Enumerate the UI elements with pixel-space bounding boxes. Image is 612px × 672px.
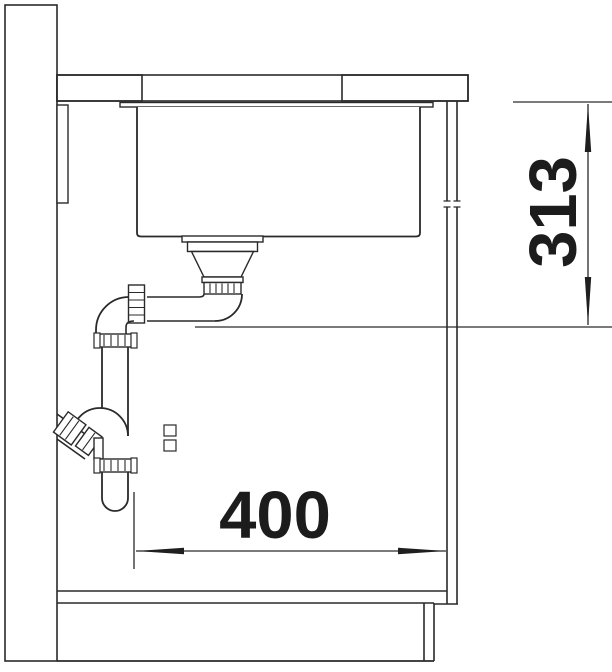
sink-bowl — [137, 107, 420, 237]
siphon-trap — [53, 333, 176, 511]
cabinet-side-panel — [447, 101, 457, 604]
pipe-coupling-nut — [129, 285, 145, 323]
wall-batten — [57, 105, 68, 203]
wall-section — [5, 5, 68, 661]
installation-drawing: 313 400 — [0, 0, 612, 672]
arrow-up-icon — [585, 104, 591, 152]
dimension-400-label: 400 — [219, 478, 331, 553]
worktop — [57, 75, 468, 101]
dimension-313-label: 313 — [516, 156, 591, 268]
sink — [120, 103, 433, 237]
pipe-clip — [164, 425, 176, 436]
sink-flange — [120, 103, 433, 108]
arrow-left-icon — [136, 548, 184, 554]
wall-outlet-branch — [53, 412, 103, 459]
arrow-right-icon — [398, 548, 446, 554]
arrow-down-icon — [585, 277, 591, 325]
dimension-400: 400 — [134, 478, 446, 569]
trap-u-tube — [102, 472, 128, 511]
drawing-canvas: 313 400 — [0, 0, 612, 672]
pipe-clip — [164, 440, 176, 451]
plinth — [424, 603, 434, 661]
strainer-drain — [182, 236, 263, 294]
